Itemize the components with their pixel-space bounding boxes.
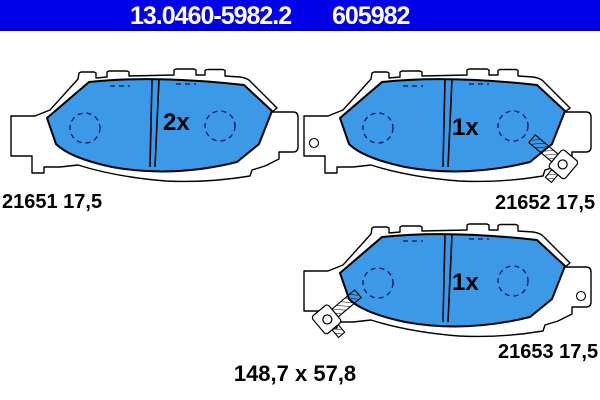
brake-pad-drawing-2 bbox=[301, 66, 593, 201]
article-number: 605982 bbox=[332, 2, 409, 31]
part-number-label-pad2: 21652 17,5 bbox=[495, 193, 595, 213]
quantity-label-pad1: 2x bbox=[163, 111, 190, 135]
ear-hole bbox=[310, 139, 319, 148]
header-bar: 13.0460-5982.2 605982 bbox=[0, 0, 600, 31]
brake-pad-drawing-3 bbox=[301, 221, 593, 356]
brake-pad-catalog-page: 13.0460-5982.2 605982 bbox=[0, 0, 600, 400]
brake-pad-diagram-3 bbox=[301, 221, 593, 356]
part-number-label-pad1: 21651 17,5 bbox=[2, 192, 102, 212]
quantity-label-pad2: 1x bbox=[452, 116, 479, 140]
brake-pad-diagram-1 bbox=[8, 66, 300, 201]
dimensions-label: 148,7 x 57,8 bbox=[175, 363, 415, 385]
brake-pad-diagram-2 bbox=[301, 66, 593, 201]
ear-hole bbox=[577, 292, 586, 301]
part-number-label-pad3: 21653 17,5 bbox=[498, 342, 598, 362]
brake-pad-drawing-1 bbox=[8, 66, 300, 201]
catalog-number: 13.0460-5982.2 bbox=[130, 2, 291, 31]
quantity-label-pad3: 1x bbox=[452, 271, 479, 295]
